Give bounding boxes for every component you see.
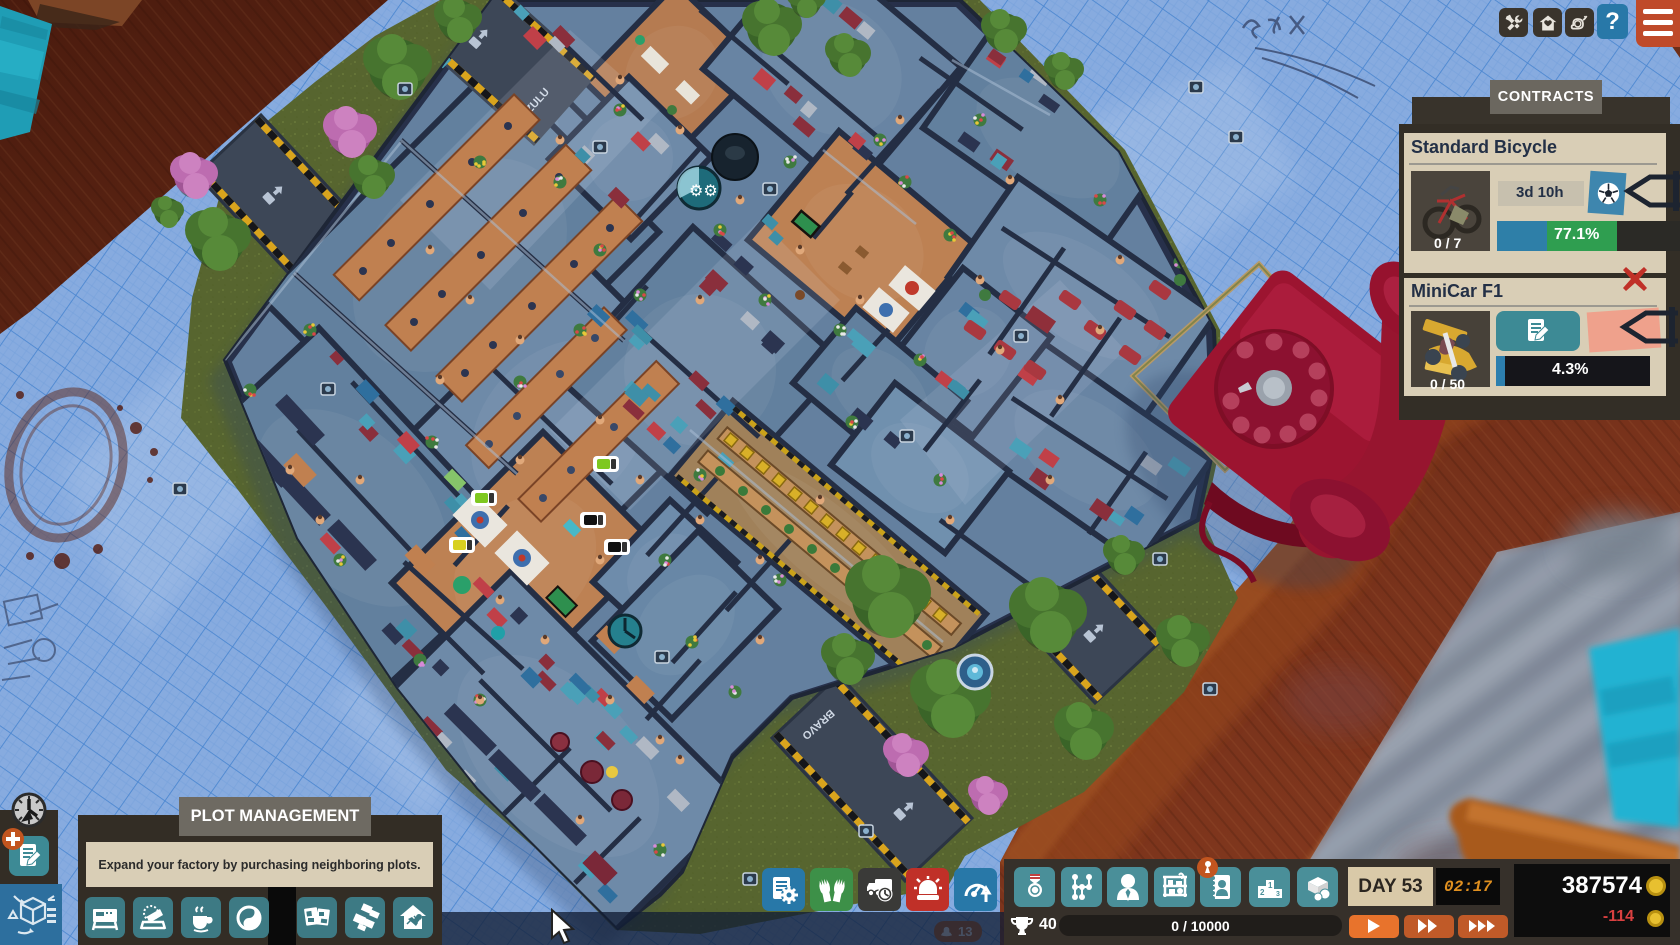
svg-text:⚙⚙: ⚙⚙ [689, 183, 718, 200]
svg-text:1: 1 [1268, 881, 1273, 890]
svg-text:2: 2 [1260, 888, 1265, 897]
svg-text:3: 3 [1276, 891, 1280, 898]
